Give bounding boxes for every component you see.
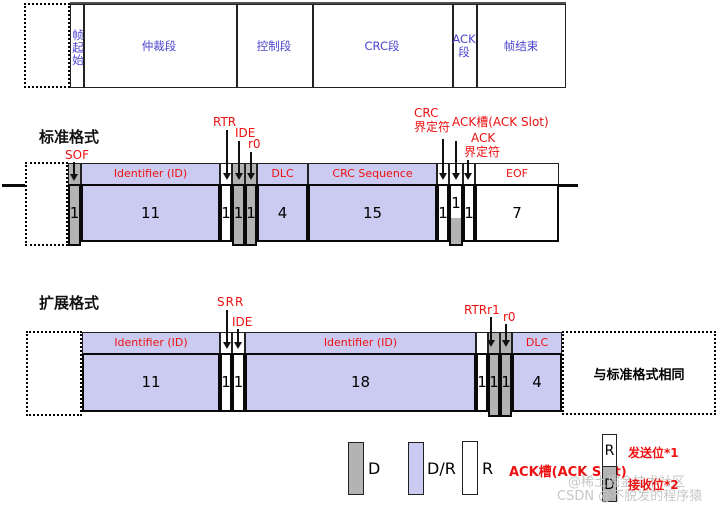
legend-dominant-label: D bbox=[368, 461, 380, 477]
sof-callout: SOF bbox=[65, 148, 89, 162]
ext-dlc-bits: 4 bbox=[512, 353, 562, 412]
std-id-bits: 11 bbox=[81, 184, 220, 242]
bit-count: 1 bbox=[501, 375, 511, 390]
bit-count: 1 bbox=[246, 206, 256, 221]
std-rtr-bits: 1 bbox=[220, 184, 232, 242]
crc-delim-callout-line2: 界定符 bbox=[414, 120, 450, 134]
ide-arrow bbox=[238, 141, 240, 173]
ext-id1-label: Identifier (ID) bbox=[82, 336, 220, 350]
crc-delim-arrow bbox=[442, 139, 444, 173]
ext-ide-bits: 1 bbox=[232, 353, 245, 412]
segment-frame-end: 帧结束 bbox=[481, 40, 561, 53]
std-crc-delim-bits: 1 bbox=[437, 184, 449, 242]
legend-dual-box bbox=[408, 442, 424, 495]
ack-slot-arrow bbox=[455, 141, 457, 173]
bit-count: 1 bbox=[464, 206, 474, 221]
rtr-r1-callout: RTRr1 bbox=[464, 303, 500, 317]
std-r0-bits: 1 bbox=[245, 184, 257, 246]
std-sof-bits: 1 bbox=[68, 184, 81, 246]
legend-dominant-box bbox=[348, 442, 364, 495]
std-eof-label: EOF bbox=[475, 167, 559, 181]
rtr-r1-arrow bbox=[490, 317, 492, 340]
ext-r1-bits: 1 bbox=[488, 353, 500, 417]
ext-id2-label: Identifier (ID) bbox=[245, 336, 476, 350]
std-id-label: Identifier (ID) bbox=[81, 167, 220, 181]
bit-count: 15 bbox=[363, 206, 382, 221]
ack-slot-callout: ACK槽(ACK Slot) bbox=[452, 115, 549, 129]
ext-ide-callout: IDE bbox=[232, 315, 252, 329]
transmit-bit-note: 发送位*1 bbox=[628, 444, 679, 461]
bit-count: 1 bbox=[70, 206, 80, 221]
bit-count: 1 bbox=[438, 206, 448, 221]
extended-format-title: 扩展格式 bbox=[39, 292, 99, 313]
ext-r0-callout: r0 bbox=[503, 310, 516, 324]
ext-rtr-bits: 1 bbox=[476, 353, 488, 412]
bit-count: 1 bbox=[489, 375, 499, 390]
ext-srr-bits: 1 bbox=[220, 353, 232, 412]
rtr-arrow bbox=[226, 130, 228, 173]
std-ide-bits: 1 bbox=[232, 184, 245, 246]
crc-delim-callout-line1: CRC bbox=[414, 106, 439, 120]
r0-arrow bbox=[250, 152, 252, 173]
legend-dual-label: D/R bbox=[427, 461, 456, 477]
std-ack-slot-bits: 1 bbox=[449, 184, 463, 246]
ext-id2-bits: 18 bbox=[245, 353, 476, 412]
standard-leading-dotted-box bbox=[25, 162, 68, 246]
bit-count: 7 bbox=[512, 206, 522, 221]
bit-count: 4 bbox=[532, 375, 542, 390]
segment-ack: ACK段 bbox=[451, 33, 477, 59]
ext-dlc-label: DLC bbox=[512, 336, 562, 350]
can-frame-format-diagram: 帧起始 仲裁段 控制段 CRC段 ACK段 帧结束 标准格式 Identifie… bbox=[0, 0, 720, 507]
r0-callout: r0 bbox=[248, 137, 261, 151]
legend-recessive-box bbox=[462, 441, 478, 495]
bit-count: 18 bbox=[351, 375, 370, 390]
std-dlc-label: DLC bbox=[257, 167, 308, 181]
bit-count: 1 bbox=[221, 206, 231, 221]
same-as-standard-box: 与标准格式相同 bbox=[562, 331, 716, 415]
ext-r0-arrow bbox=[505, 324, 507, 340]
legend-recessive-label: R bbox=[482, 461, 493, 477]
ext-id1-bits: 11 bbox=[82, 353, 220, 412]
ext-r0-bits: 1 bbox=[500, 353, 512, 417]
same-as-standard-text: 与标准格式相同 bbox=[593, 364, 684, 383]
bit-count: 4 bbox=[278, 206, 288, 221]
bit-count: 1 bbox=[221, 375, 231, 390]
segment-control: 控制段 bbox=[234, 40, 314, 53]
ext-ide-arrow bbox=[237, 329, 239, 342]
std-eof-bits: 7 bbox=[475, 184, 559, 242]
extended-leading-dotted-box bbox=[26, 331, 82, 416]
std-dlc-bits: 4 bbox=[257, 184, 308, 242]
leading-dotted-box bbox=[24, 3, 70, 88]
bit-count: 1 bbox=[477, 375, 487, 390]
ack-slot-dominant-half bbox=[451, 218, 461, 244]
bit-count: 1 bbox=[234, 206, 244, 221]
stack-recessive-letter: R bbox=[603, 444, 616, 458]
sof-arrow bbox=[73, 162, 75, 174]
std-crc-label: CRC Sequence bbox=[308, 167, 437, 181]
rtr-callout: RTR bbox=[213, 115, 236, 129]
standard-format-title: 标准格式 bbox=[39, 126, 99, 147]
ack-delim-arrow bbox=[467, 160, 469, 173]
bit-count: 11 bbox=[141, 375, 160, 390]
receive-bit-note: 接收位*2 bbox=[628, 476, 679, 493]
ack-delim-callout-line1: ACK bbox=[471, 131, 495, 145]
std-crc-bits: 15 bbox=[308, 184, 437, 242]
segment-arbitration: 仲裁段 bbox=[119, 40, 199, 53]
segment-frame-start: 帧起始 bbox=[70, 17, 84, 79]
ack-delim-callout-line2: 界定符 bbox=[464, 145, 500, 159]
srr-arrow bbox=[226, 310, 228, 342]
bit-count: 1 bbox=[234, 375, 244, 390]
bit-count: 1 bbox=[451, 196, 461, 211]
segment-crc: CRC段 bbox=[342, 40, 422, 53]
srr-callout: SRR bbox=[217, 295, 244, 309]
bit-count: 11 bbox=[141, 206, 160, 221]
std-ack-delim-bits: 1 bbox=[463, 184, 475, 242]
